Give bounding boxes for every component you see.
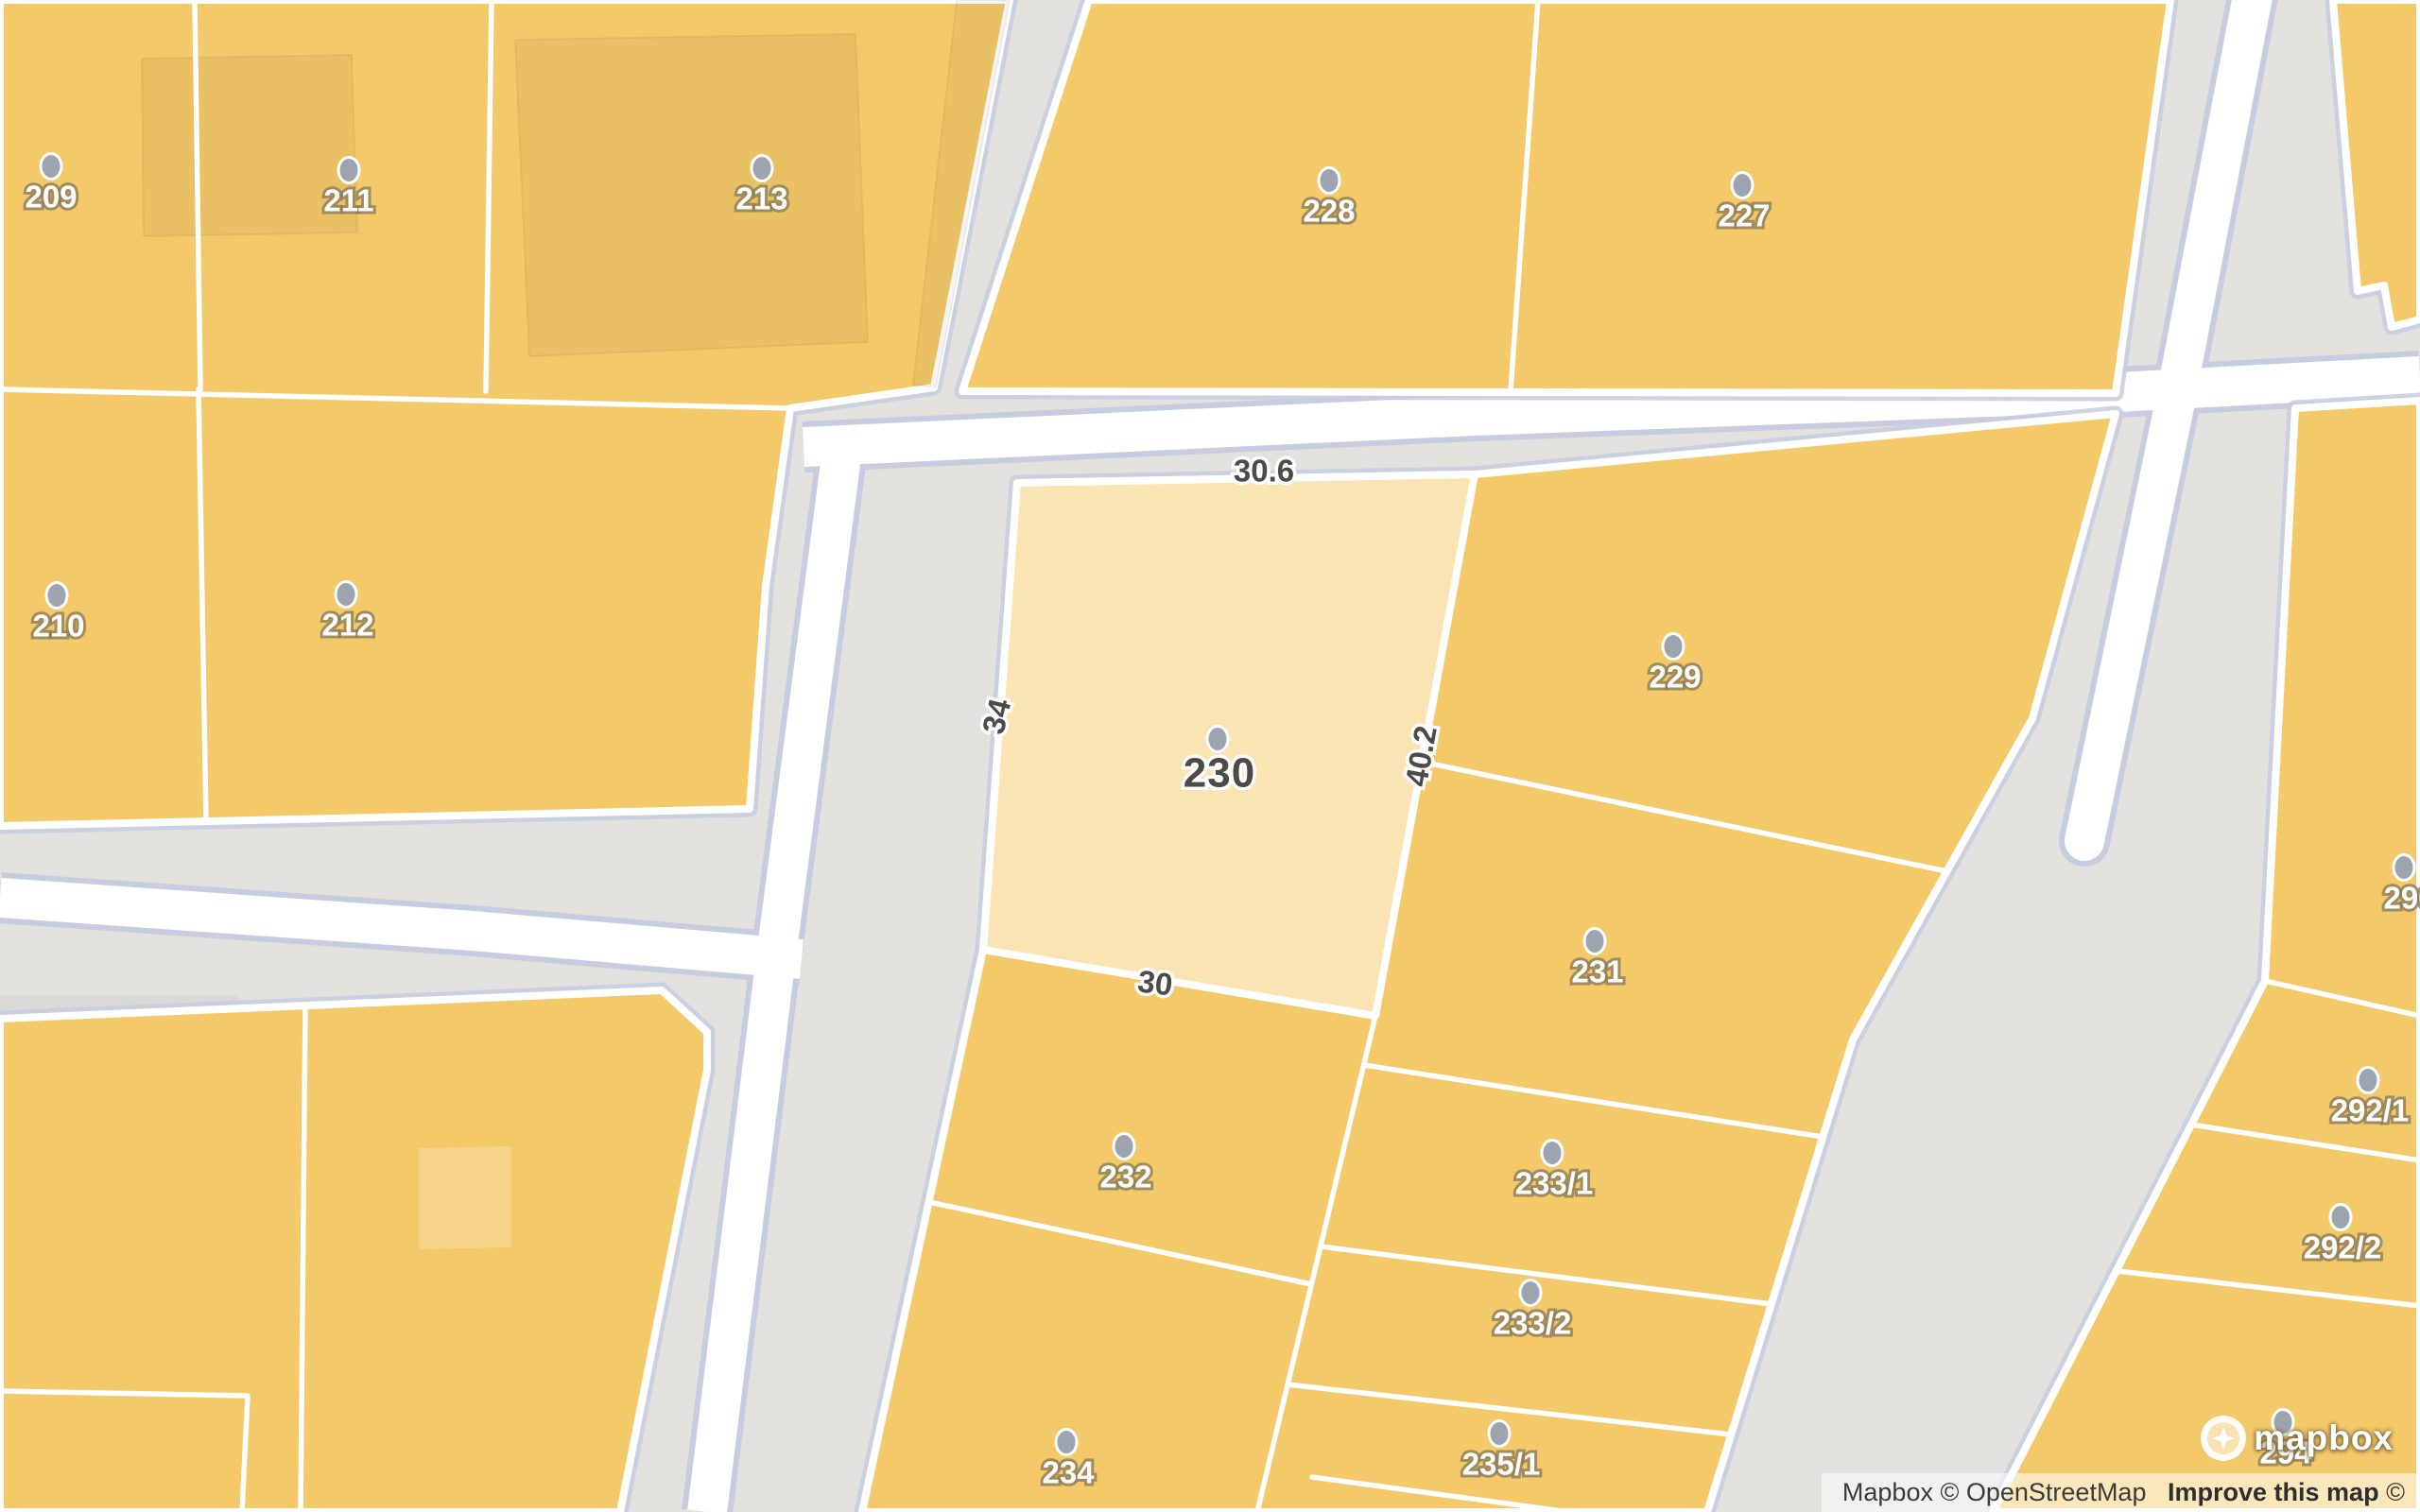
improve-this-map-link[interactable]: Improve this map: [2168, 1478, 2379, 1506]
parcel-centroid-dot-213: [752, 156, 772, 181]
parcel-label-229: 229: [1649, 660, 1701, 695]
parcel-label-233/1: 233/1: [1515, 1166, 1594, 1201]
parcel-label-227: 227: [1718, 198, 1770, 233]
parcel-centroid-dot-209: [41, 154, 61, 180]
parcel-label-290: 290: [2383, 881, 2420, 916]
parcel-label-210: 210: [32, 609, 84, 644]
parcel-label-212: 212: [321, 608, 373, 643]
parcel-centroid-dot-228: [1319, 168, 1340, 194]
dimension-label-30: 30: [1136, 963, 1175, 1002]
parcel-centroid-dot-227: [1732, 173, 1753, 198]
dimension-label-30.6: 30.6: [1234, 454, 1294, 489]
parcel-centroid-dot-233/2: [1520, 1280, 1541, 1306]
parcel-label-231: 231: [1571, 954, 1623, 989]
parcel-label-235/1: 235/1: [1462, 1447, 1541, 1482]
attribution-text: Mapbox © OpenStreetMap: [1842, 1478, 2147, 1506]
parcel-centroid-dot-292/2: [2330, 1205, 2351, 1230]
parcel-centroid-dot-234: [1056, 1430, 1077, 1455]
parcel-centroid-dot-229: [1663, 634, 1684, 660]
attribution-suffix: ©: [2386, 1478, 2405, 1506]
parcel-centroid-dot-211: [338, 158, 359, 183]
parcel-centroid-dot-290: [2394, 855, 2414, 881]
mapbox-wordmark: mapbox: [2254, 1418, 2394, 1458]
parcel-label-292/2: 292/2: [2304, 1230, 2382, 1265]
parcel-centroid-dot-210: [46, 583, 67, 609]
selected-parcel-label-230: 230: [1184, 750, 1255, 797]
parcel-label-232: 232: [1099, 1160, 1151, 1194]
parcel-centroid-dot-232: [1114, 1134, 1134, 1160]
building-on-213: [515, 34, 868, 356]
map-canvas[interactable]: 209211213228227210212229231232233/1233/2…: [0, 0, 2420, 1512]
parcel-label-233/2: 233/2: [1494, 1306, 1572, 1341]
parcel-label-228: 228: [1303, 194, 1355, 229]
mapbox-logo-icon: [2199, 1414, 2248, 1463]
parcel-centroid-dot-292/1: [2358, 1068, 2378, 1093]
parcel-label-213: 213: [735, 181, 787, 216]
block-228-227: [962, 0, 2170, 393]
attribution-bar: Mapbox © OpenStreetMap Improve this map …: [1822, 1473, 2420, 1512]
map-layers: 209211213228227210212229231232233/1233/2…: [0, 0, 2420, 1512]
parcel-centroid-dot-230: [1207, 727, 1228, 752]
parcel-centroid-dot-233/1: [1542, 1141, 1563, 1166]
parcel-label-234: 234: [1042, 1455, 1095, 1490]
parcel-label-292/1: 292/1: [2331, 1093, 2410, 1128]
parcel-label-211: 211: [323, 183, 373, 218]
parcel-label-209: 209: [25, 180, 77, 215]
parcel-centroid-dot-212: [336, 582, 356, 608]
building-on-259: [419, 1146, 511, 1249]
mapbox-logo[interactable]: mapbox: [2199, 1414, 2394, 1463]
parcel-centroid-dot-235/1: [1489, 1421, 1510, 1447]
block-257-259: [0, 990, 707, 1512]
parcel-centroid-dot-231: [1584, 929, 1605, 954]
